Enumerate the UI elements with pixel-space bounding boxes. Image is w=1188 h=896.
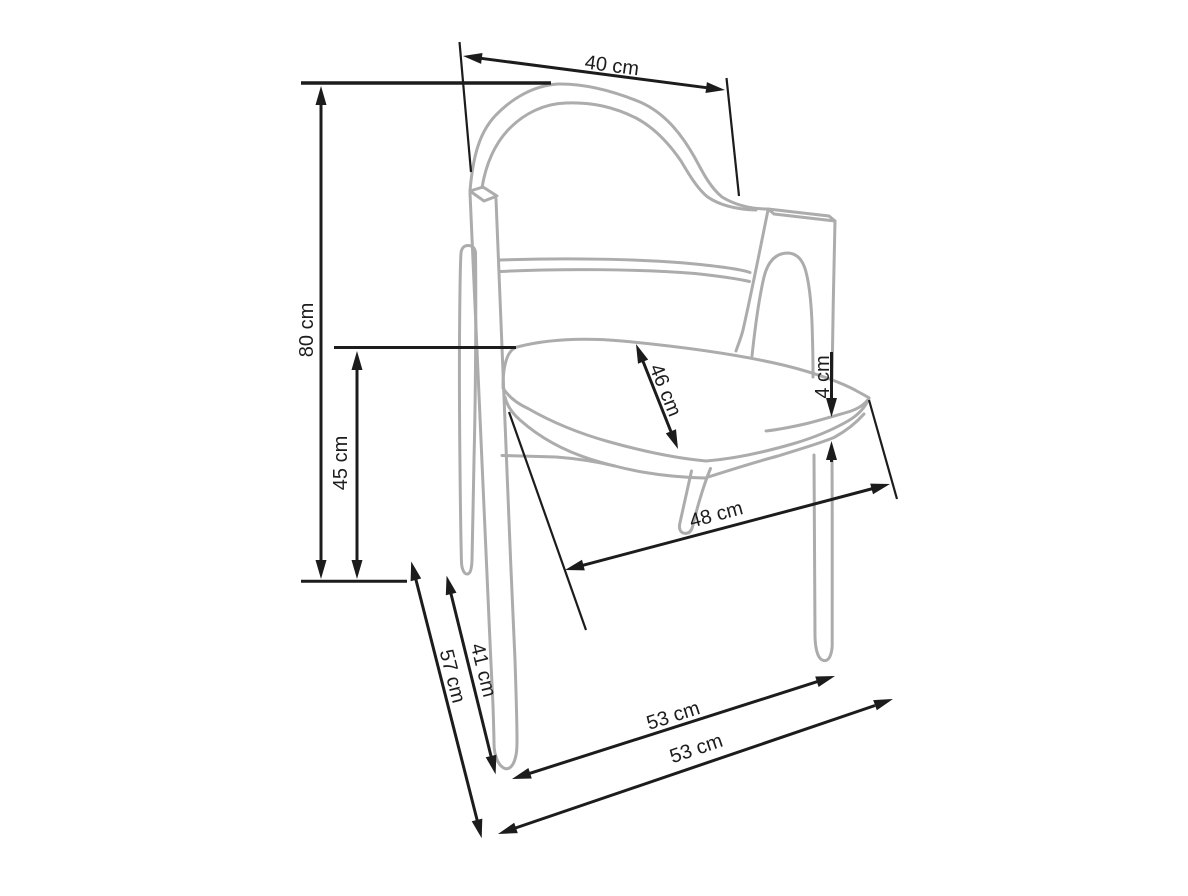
svg-text:4 cm: 4 cm bbox=[812, 355, 834, 398]
svg-text:45 cm: 45 cm bbox=[330, 436, 352, 490]
svg-text:80 cm: 80 cm bbox=[296, 303, 318, 357]
